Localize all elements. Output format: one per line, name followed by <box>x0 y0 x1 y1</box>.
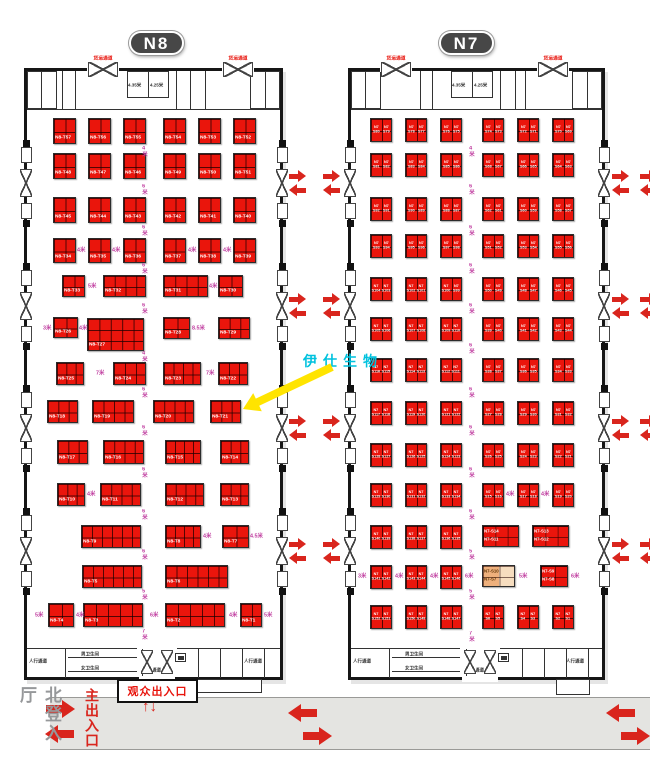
booth-label: N7 S93 <box>373 242 380 251</box>
booth-N7-S145-S146: N7 S145N7 S146 <box>440 565 462 589</box>
arrow-body <box>331 433 340 438</box>
booth-label: N7 S119 <box>407 409 415 418</box>
aisle-width-label: 4米 <box>467 146 475 157</box>
booth-half: N7 S6 <box>483 606 493 628</box>
booth-N8-T7: N8-T7 <box>222 525 249 548</box>
booth-label: N7 S59 <box>530 205 537 214</box>
door-leaf <box>599 147 610 163</box>
booth-label: N7 S84 <box>418 161 425 170</box>
booth-label: N7 S60 <box>520 205 527 214</box>
aisle-width-label: 5米 <box>264 610 272 618</box>
booth-label: N7 S25 <box>495 451 502 460</box>
flow-arrow-right-icon <box>289 170 306 182</box>
booth-half: N7 S55 <box>553 235 563 257</box>
door-leaf <box>277 515 288 531</box>
aisle-width-label: 7米 <box>140 629 148 640</box>
freight-passage-label: 货运通道 <box>225 54 251 60</box>
arrow-body <box>612 174 621 179</box>
booth-label: N7 S83 <box>408 161 415 170</box>
booth-N7-S66-S65: N7 S66N7 S65 <box>517 153 539 177</box>
booth-half: N7 S68 <box>483 154 493 176</box>
booth-N8-T45: N8-T45 <box>53 197 76 223</box>
freight-passage-label: 货运通道 <box>383 54 409 60</box>
flow-arrow-left-icon <box>289 552 306 564</box>
booth-half: N7 S118 <box>381 402 391 424</box>
door-swing-icon <box>344 414 356 442</box>
room-divider <box>205 71 206 109</box>
booth-label: N8-T11 <box>102 497 118 502</box>
booth-label: N8-T33 <box>64 288 80 293</box>
booth-N7-S17-S18: N7 S17N7 S18 <box>517 483 539 507</box>
visitor-entrance-label: 观众出入口 <box>128 683 188 699</box>
arrow-head <box>612 429 620 441</box>
booth-half: N7 S147 <box>451 606 461 628</box>
flow-arrow-right-icon <box>640 293 650 305</box>
booth-label: N8-T37 <box>165 254 181 259</box>
corner-room <box>27 71 57 109</box>
arrow-body <box>620 311 629 316</box>
booth-label: N7-S12 <box>534 538 549 542</box>
booth-label: N7 S89 <box>418 205 425 214</box>
booth-label: N7 S117 <box>372 409 380 418</box>
booth-label: N7 S72 <box>520 126 527 135</box>
booth-N7-S76-S75: N7 S76N7 S75 <box>440 118 462 142</box>
booth-label: N7 S63 <box>565 161 572 170</box>
booth-label: N8-T7 <box>224 539 237 544</box>
booth-N7-S74-S73: N7 S74N7 S73 <box>482 118 504 142</box>
booth-label: N7 S68 <box>485 161 492 170</box>
aisle-width-label: 6米 <box>140 225 148 236</box>
arrow-head <box>289 307 297 319</box>
booth-half: N7 S17 <box>518 484 528 506</box>
arrow-head <box>323 429 331 441</box>
wall-stub <box>23 263 30 270</box>
wall-stub <box>23 385 30 392</box>
booth-label: N7 S43 <box>555 325 562 334</box>
booth-half: N7 S65 <box>528 154 538 176</box>
booth-half: N7 S117 <box>371 402 381 424</box>
arrow-head <box>289 184 297 196</box>
booth-N7-S64-S63: N7 S64N7 S63 <box>552 153 574 177</box>
booth-label: N7-S14 <box>484 530 499 534</box>
booth-half: N7 S63 <box>563 154 573 176</box>
booth-half: N7 S140 <box>371 526 381 548</box>
door-leaf <box>21 147 32 163</box>
booth-label: N8-T57 <box>55 135 71 140</box>
booth-half: N7 S95 <box>406 235 416 257</box>
aisle-width-label: 6米 <box>467 263 475 274</box>
booth-half: N7 S112 <box>441 359 451 381</box>
room-divider <box>75 71 76 109</box>
booth-half: N7 S84 <box>416 154 426 176</box>
booth-N8-T48: N8-T48 <box>53 153 76 179</box>
door-leaf <box>277 147 288 163</box>
booth-label: N7 S150 <box>407 613 416 622</box>
booth-label: N8-T54 <box>165 135 181 140</box>
booth-N7-S141-S142: N7 S141N7 S142 <box>370 565 392 589</box>
booth-label: N7 S33 <box>565 366 572 375</box>
booth-N7-S93-S94: N7 S93N7 S94 <box>370 234 392 258</box>
booth-label: N7 S85 <box>443 161 450 170</box>
corner-room <box>351 71 381 109</box>
booth-N7-S51-S52: N7 S51N7 S52 <box>482 234 504 258</box>
aisle-width-label: 4米 <box>112 245 120 253</box>
booth-label: N7 S6 <box>486 613 491 622</box>
booth-half: N7 S1 <box>563 606 573 628</box>
booth-label: N8-T42 <box>165 214 181 219</box>
booth-label: N7 S128 <box>372 451 381 460</box>
booth-N7-S15-S16: N7 S15N7 S16 <box>482 483 504 507</box>
booth-label: N7 S129 <box>372 491 381 500</box>
booth-label: N7 S66 <box>520 161 527 170</box>
arrow-body <box>289 419 298 424</box>
booth-label: N7 S32 <box>565 409 572 418</box>
booth-N8-T51: N8-T51 <box>233 153 256 179</box>
booth-N7-S27-S28: N7 S27N7 S28 <box>482 401 504 425</box>
booth-N7-S117-S118: N7 S117N7 S118 <box>370 401 392 425</box>
booth-label: N7 S145 <box>442 573 451 582</box>
booth-half: N7 S124 <box>441 444 451 466</box>
wall-stub <box>23 465 30 472</box>
room-divider <box>242 649 243 678</box>
aisle-width-label: 5米 <box>88 281 96 289</box>
dimension-label: 4.25米 <box>474 81 487 88</box>
wall-stub <box>23 220 30 227</box>
flow-arrow-left-icon <box>289 429 306 441</box>
door-leaf <box>599 392 610 408</box>
aisle-width-label: 4米 <box>506 489 514 497</box>
booth-N7-S58-S57: N7 S58N7 S57 <box>552 197 574 221</box>
booth-half: N7 S31 <box>553 402 563 424</box>
booth-N8-T29: N8-T29 <box>218 317 250 339</box>
wall-stub <box>601 343 608 350</box>
booth-label: N7 S16 <box>495 491 502 500</box>
booth-half: N7 S127 <box>381 444 391 466</box>
booth-half: N7 S105 <box>371 318 381 340</box>
aisle-width-label: 8.5米 <box>192 323 205 331</box>
booth-half: N7 S142 <box>381 566 391 588</box>
arrow-head <box>621 415 629 427</box>
booth-label: N7 S103 <box>382 285 391 294</box>
booth-label: N7 S124 <box>442 451 451 460</box>
booth-half: N7 S88 <box>441 198 451 220</box>
booth-half: N7 S42 <box>528 318 538 340</box>
wall-stub <box>347 465 354 472</box>
booth-half: N7 S97 <box>441 235 451 257</box>
door-swing-icon <box>276 414 288 442</box>
booth-label: N8-T3 <box>85 618 98 623</box>
door-swing-icon <box>598 537 610 565</box>
booth-label: N7 S134 <box>452 491 461 500</box>
booth-half: N7 S144 <box>416 566 426 588</box>
booth-label: N7 S138 <box>407 533 416 542</box>
flow-arrow-left-icon <box>323 184 340 196</box>
booth-label: N8-T8 <box>167 539 180 544</box>
booth-label: N8-T5 <box>84 579 97 584</box>
booth-half: N7 S47 <box>528 278 538 300</box>
booth-label: N8-T27 <box>89 342 105 347</box>
arrow-head <box>640 552 648 564</box>
aisle-width-label: 5米 <box>140 589 148 600</box>
booth-N7-S150-S149: N7 S150N7 S149 <box>405 605 427 629</box>
room-divider <box>264 649 265 678</box>
booth-label: N7 S19 <box>555 491 562 500</box>
booth-N7-S119-S120: N7 S119N7 S120 <box>405 401 427 425</box>
booth-label: N7 S86 <box>453 161 460 170</box>
dimension-label: 4.35米 <box>452 81 465 88</box>
booth-N8-T23: N8-T23 <box>163 362 201 385</box>
booth-N7-S140-S139: N7 S140N7 S139 <box>370 525 392 549</box>
booth-N7-S107-S108: N7 S107N7 S108 <box>405 317 427 341</box>
booth-half: N7 S134 <box>451 484 461 506</box>
pedestrian-passage-label: 人行通道 <box>353 657 371 664</box>
booth-label: N7 S61 <box>495 205 502 214</box>
arrow-head <box>621 538 629 550</box>
flow-arrow-left-icon <box>640 184 650 196</box>
arrow-head <box>332 293 340 305</box>
booth-label: N7 S130 <box>382 491 391 500</box>
booth-label: N8-T1 <box>242 618 255 623</box>
booth-N7-S24-S23: N7 S24N7 S23 <box>517 443 539 467</box>
booth-label: N7 S115 <box>382 366 390 375</box>
booth-label: N7 S106 <box>382 325 391 334</box>
room-divider <box>176 71 177 109</box>
booth-label: N7 S110 <box>452 325 460 334</box>
visitor-updown-arrows-icon: ↑↓ <box>142 698 157 715</box>
booth-label: N7 S46 <box>555 285 562 294</box>
booth-half: N7 S141 <box>371 566 381 588</box>
booth-label: N7 S146 <box>452 573 461 582</box>
booth-half: N7 S119 <box>406 402 416 424</box>
door-leaf <box>345 203 356 219</box>
booth-half: N7 S74 <box>483 119 493 141</box>
door-leaf <box>277 448 288 464</box>
booth-N7-S124-S123: N7 S124N7 S123 <box>440 443 462 467</box>
arrow-head <box>323 552 331 564</box>
booth-label: N7 S36 <box>520 366 527 375</box>
flow-arrow-left-icon <box>612 307 629 319</box>
door-leaf <box>599 515 610 531</box>
booth-half: N7 S54 <box>528 235 538 257</box>
arrow-head <box>323 307 331 319</box>
aisle-width-label: 4米 <box>79 323 87 331</box>
booth-label: N8-T32 <box>105 288 121 293</box>
booth-half: N7 S18 <box>528 484 538 506</box>
flow-arrow-right-icon <box>323 538 340 550</box>
flow-arrow-left-icon <box>323 307 340 319</box>
aisle-width-label: 6米 <box>467 184 475 195</box>
booth-half: N7 S135 <box>451 526 461 548</box>
arrow-head <box>332 170 340 182</box>
arrow-body <box>612 419 621 424</box>
booth-label: N7 S71 <box>530 126 537 135</box>
booth-N7-S85-S86: N7 S85N7 S86 <box>440 153 462 177</box>
booth-N7-S41-S42: N7 S41N7 S42 <box>517 317 539 341</box>
entrance-structure <box>196 679 262 693</box>
booth-half: N7 S102 <box>406 278 416 300</box>
door-leaf <box>345 571 356 587</box>
arrow-body <box>620 556 629 561</box>
aisle-width-label: 4米 <box>188 245 196 253</box>
booth-label: N8-T39 <box>235 254 251 259</box>
booth-half: N7 S93 <box>371 235 381 257</box>
booth-half: N7 S120 <box>416 402 426 424</box>
door-swing-icon <box>276 537 288 565</box>
booth-half: N7 S125 <box>416 444 426 466</box>
wall-stub <box>347 220 354 227</box>
booth-N7-S95-S96: N7 S95N7 S96 <box>405 234 427 258</box>
booth-half: N7 S52 <box>493 235 503 257</box>
room-divider <box>432 71 433 109</box>
booth-label: N8-T22 <box>220 376 236 381</box>
booth-label: N7 S77 <box>418 126 425 135</box>
booth-N8-T27: N8-T27 <box>87 318 144 351</box>
door-swing-icon <box>344 169 356 197</box>
booth-half: N7 S25 <box>493 444 503 466</box>
aisle-width-label: 6米 <box>467 509 475 520</box>
booth-N7-S10-N7-S7: N7-S10N7-S7 <box>482 565 515 587</box>
booth-half: N7 S131 <box>406 484 416 506</box>
arrow-head <box>640 429 648 441</box>
arrow-head <box>621 293 629 305</box>
wall-stub <box>347 140 354 147</box>
booth-half: N7 S3 <box>528 606 538 628</box>
booth-label: N8-T34 <box>55 254 71 259</box>
booth-half: N7 S70 <box>553 119 563 141</box>
arrow-body <box>323 419 332 424</box>
aisle-width-label: 7米 <box>96 368 104 376</box>
booth-N7-S6-S5: N7 S6N7 S5 <box>482 605 504 629</box>
booth-half: N7 S64 <box>553 154 563 176</box>
booth-label: N7 S99 <box>453 285 460 294</box>
booth-label: N8-T14 <box>222 455 238 460</box>
booth-label: N7 S151 <box>382 613 391 622</box>
door-swing-icon <box>161 650 173 674</box>
booth-label: N7 S47 <box>530 285 537 294</box>
booth-N8-T4: N8-T4 <box>48 603 74 627</box>
booth-label: N7 S24 <box>520 451 527 460</box>
flow-arrow-left-icon <box>640 429 650 441</box>
booth-label: N7 S80 <box>373 126 380 135</box>
booth-N8-T17: N8-T17 <box>57 440 88 464</box>
aisle-width-label: 6米 <box>465 571 473 579</box>
arrow-body <box>297 556 306 561</box>
door-leaf <box>345 270 356 286</box>
aisle-width-label: 6米 <box>140 549 148 560</box>
booth-N7-S102-S101: N7 S102N7 S101 <box>405 277 427 301</box>
aisle-width-label: 4.5米 <box>250 531 263 539</box>
arrow-body <box>620 188 629 193</box>
booth-label: N7 S70 <box>555 126 562 135</box>
booth-N8-T6: N8-T6 <box>165 565 228 588</box>
booth-half: N7 S58 <box>553 198 563 220</box>
booth-half: N7 S149 <box>416 606 426 628</box>
door-swing-icon <box>464 650 476 674</box>
booth-label: N7 S102 <box>407 285 416 294</box>
booth-N7-S2-S1: N7 S2N7 S1 <box>552 605 574 629</box>
booth-half: N7 S51 <box>483 235 493 257</box>
aisle-width-label: 4米 <box>87 489 95 497</box>
arrow-head <box>637 727 650 745</box>
booth-half: N7 S2 <box>553 606 563 628</box>
booth-half: N7 S79 <box>381 119 391 141</box>
booth-label: N8-T17 <box>59 455 75 460</box>
booth-N8-T20: N8-T20 <box>153 400 194 423</box>
booth-label: N7 S118 <box>382 409 390 418</box>
arrow-head <box>319 727 332 745</box>
door-swing-icon <box>598 169 610 197</box>
booth-label: N7 S62 <box>485 205 492 214</box>
booth-label: N7 S57 <box>565 205 572 214</box>
freight-door-swing-icon <box>538 62 568 77</box>
booth-label: N7 S64 <box>555 161 562 170</box>
booth-label: N7 S114 <box>407 366 415 375</box>
stair-line <box>392 657 460 658</box>
flow-arrow-left-icon <box>323 429 340 441</box>
flow-arrow-right-icon <box>303 727 333 745</box>
arrow-head <box>612 552 620 564</box>
flow-arrow-left-icon <box>323 552 340 564</box>
flow-arrow-left-icon <box>612 184 629 196</box>
booth-N8-T37: N8-T37 <box>163 238 186 263</box>
booth-label: N8-T2 <box>167 618 180 623</box>
arrow-body <box>301 709 317 717</box>
booth-label: N7 S147 <box>452 613 461 622</box>
booth-label: N8-T51 <box>235 170 251 175</box>
aisle-width-label: 4米 <box>541 489 549 497</box>
booth-label: N7 S126 <box>407 451 416 460</box>
booth-half: N7 S67 <box>493 154 503 176</box>
booth-N7-S133-S134: N7 S133N7 S134 <box>440 483 462 507</box>
arrow-head <box>640 184 648 196</box>
booth-half: N7 S27 <box>483 402 493 424</box>
booth-label: N7 S4 <box>521 613 526 622</box>
door-swing-icon <box>276 169 288 197</box>
restroom-label: 男卫生间 <box>81 650 99 657</box>
arrow-body <box>289 174 298 179</box>
booth-label: N7 S73 <box>495 126 502 135</box>
door-swing-icon <box>598 292 610 320</box>
booth-N8-T41: N8-T41 <box>198 197 221 223</box>
booth-N7-S136-S135: N7 S136N7 S135 <box>440 525 462 549</box>
booth-N8-T16: N8-T16 <box>103 440 144 464</box>
wall-stub <box>347 385 354 392</box>
booth-N8-T31: N8-T31 <box>163 275 208 297</box>
booth-N7-S105-S106: N7 S105N7 S106 <box>370 317 392 341</box>
booth-half: N7 S98 <box>451 235 461 257</box>
booth-N8-T19: N8-T19 <box>92 400 134 423</box>
booth-N8-T5: N8-T5 <box>82 565 142 588</box>
callout-arrow-icon <box>235 362 340 417</box>
corridor-wall <box>27 648 137 649</box>
wall-stub <box>601 220 608 227</box>
booth-N7-S112-S111: N7 S112N7 S111 <box>440 358 462 382</box>
booth-label: N7 S35 <box>530 366 537 375</box>
exhibition-floorplan: 北登入厅 主出入口 观众出入口 ↑↓ 伊仕生物 4.35米4.25米货运通道货运… <box>0 0 650 757</box>
booth-half: N7 S113 <box>416 359 426 381</box>
booth-half: N7 S82 <box>381 154 391 176</box>
booth-label: N7 S42 <box>530 325 537 334</box>
booth-half: N7 S72 <box>518 119 528 141</box>
booth-half: N7 S62 <box>483 198 493 220</box>
dimension-label: 4.35米 <box>128 81 141 88</box>
booth-label: N7-S9 <box>542 570 554 574</box>
booth-half: N7 S4 <box>518 606 528 628</box>
booth-label: N7-S7 <box>484 578 496 582</box>
booth-half: N7 S56 <box>563 235 573 257</box>
aisle-width-label: 6米 <box>467 467 475 478</box>
booth-N8-T52: N8-T52 <box>233 118 256 144</box>
